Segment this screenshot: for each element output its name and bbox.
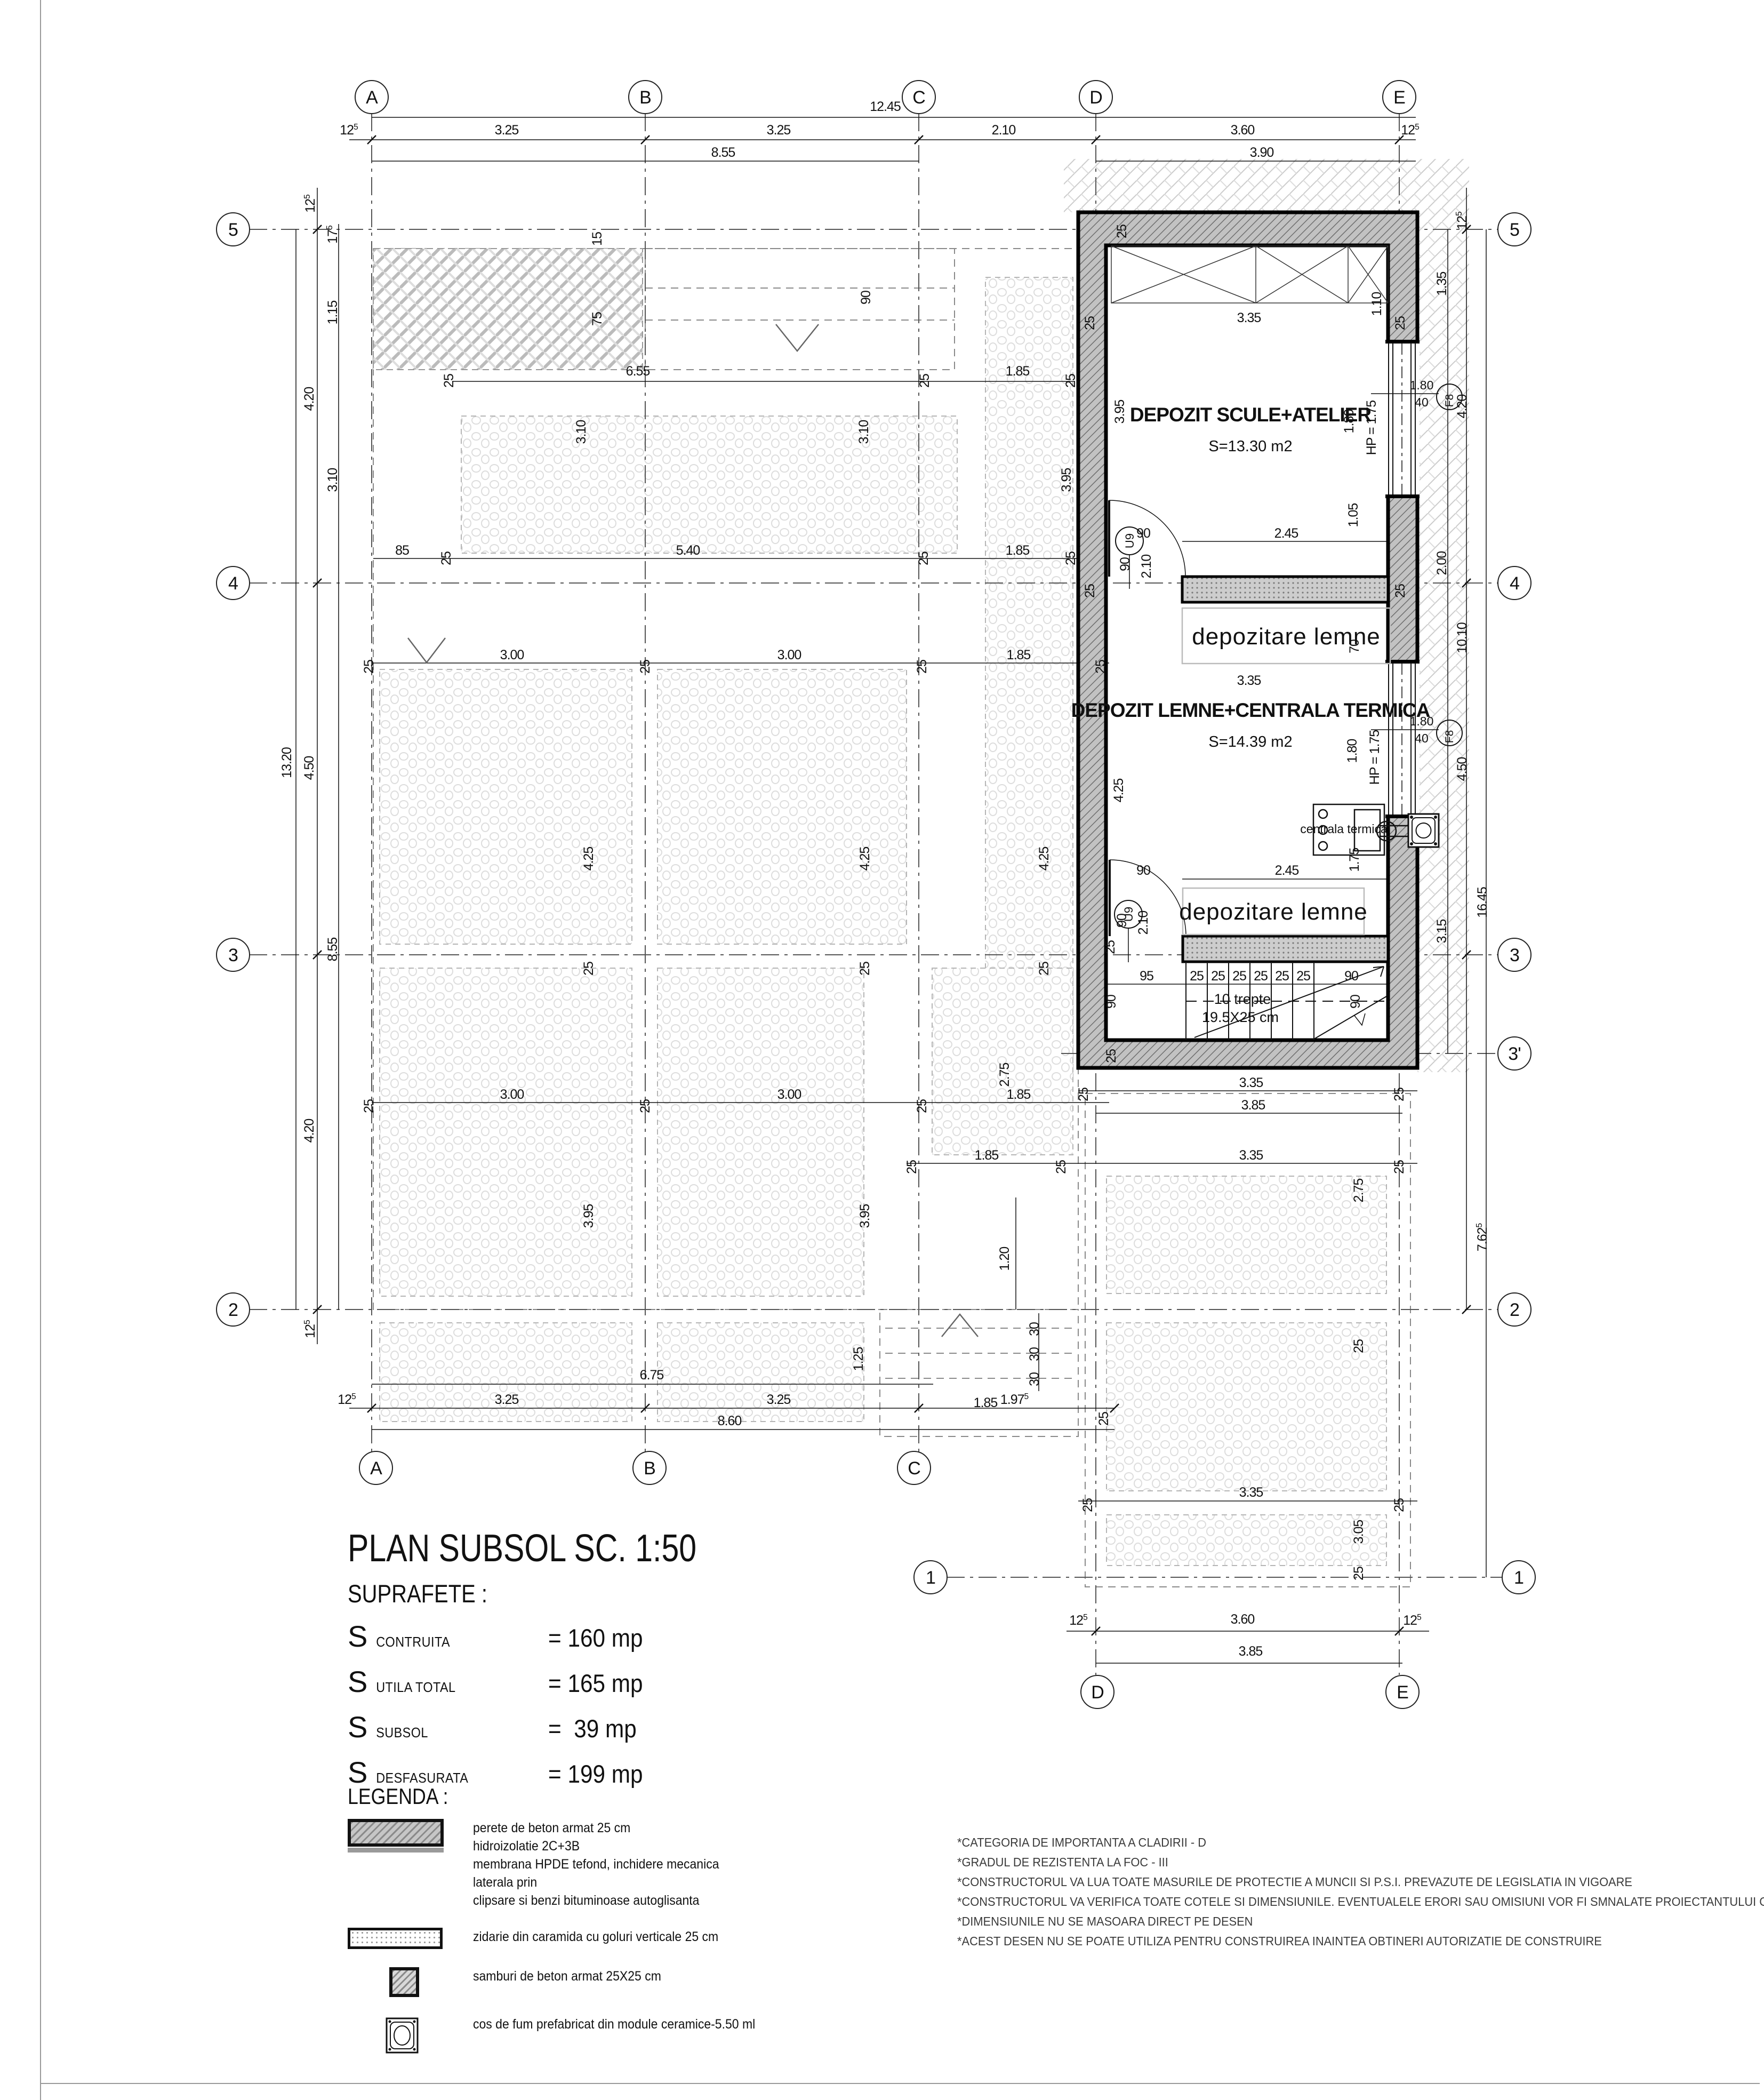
grid-bubble-C: C: [902, 81, 935, 114]
dim-label: 4.50: [302, 756, 317, 780]
dim-label: 4.20: [302, 1119, 317, 1143]
grid-bubble-5: 5: [1498, 213, 1531, 246]
dim-label: 2.45: [1275, 863, 1299, 878]
grid-bubble-2: 2: [217, 1293, 250, 1326]
dim-label: 25: [1254, 969, 1268, 984]
dim-label: 3.25: [767, 123, 791, 138]
dim-label: 8.60: [718, 1414, 742, 1428]
note-line: *GRADUL DE REZISTENTA LA FOC - III: [957, 1853, 1764, 1872]
dim-label: 8.55: [711, 145, 735, 160]
dim-label: 25: [1103, 940, 1118, 954]
dim-label: 1.85: [1007, 648, 1031, 662]
dim-label: 25: [1351, 1567, 1366, 1580]
surface-symbol: S: [348, 1664, 372, 1699]
dim-label: 125: [338, 1392, 356, 1407]
dim-label: 3.15: [1434, 920, 1449, 944]
dim-label: 4.50: [1455, 757, 1470, 781]
partition-row3: [1183, 936, 1388, 962]
dim-label: 25: [442, 374, 456, 388]
grid-bubble-A: A: [359, 1451, 392, 1484]
concrete-wall-swatch: [348, 1819, 444, 1847]
dim-label: 90: [1136, 863, 1150, 878]
grid-bubble-A: A: [355, 81, 388, 114]
dim-label: 90: [1348, 995, 1363, 1009]
partition-row4: [1182, 577, 1388, 602]
window-1: [1385, 340, 1420, 498]
gray-annotation: centrala termica: [1300, 822, 1388, 836]
note-line: *CONSTRUCTORUL VA VERIFICA TOATE COTELE …: [957, 1892, 1764, 1912]
dim-label: 3.25: [495, 123, 519, 138]
dim-label: 25: [638, 660, 653, 674]
room-name: DEPOZIT SCULE+ATELIER: [1130, 404, 1371, 426]
grid-bubble-B: B: [633, 1451, 666, 1484]
dim-label: 1.85: [1006, 543, 1030, 558]
dim-label: 25: [1393, 584, 1408, 598]
dim-label: 1.25: [851, 1347, 866, 1371]
svg-text:3: 3: [228, 945, 238, 965]
svg-text:4: 4: [228, 573, 238, 594]
dim-label: 25: [1083, 316, 1097, 330]
dim-label: 4.25: [857, 847, 872, 871]
svg-text:3': 3': [1508, 1044, 1520, 1064]
legend-item: zidarie din caramida cu goluri verticale…: [348, 1928, 780, 1949]
svg-text:C: C: [912, 87, 925, 108]
surface-row: SSUBSOL= 39 mp: [348, 1710, 828, 1744]
dim-label: 2.10: [992, 123, 1016, 138]
dim-label: 4.25: [581, 847, 596, 871]
dim-label: 25: [439, 552, 454, 565]
svg-text:A: A: [366, 87, 378, 108]
dim-label: 25: [1104, 1049, 1119, 1063]
dim-label: 5.40: [676, 543, 700, 558]
svg-text:C: C: [908, 1458, 920, 1479]
dim-label: 125: [1401, 123, 1419, 138]
svg-text:2: 2: [228, 1300, 238, 1320]
svg-text:F8: F8: [1444, 394, 1456, 408]
dim-label: 3.90: [1250, 145, 1274, 160]
dim-label: 15: [590, 232, 605, 246]
dim-label: 3.10: [325, 468, 340, 492]
svg-text:40: 40: [1415, 731, 1429, 745]
surface-row: SUTILA TOTAL= 165 mp: [348, 1664, 828, 1699]
room-area: S=13.30 m2: [1208, 438, 1292, 455]
dim-label: 1.05: [1346, 504, 1361, 528]
svg-text:U9: U9: [1122, 907, 1135, 922]
dim-label: 3.95: [581, 1204, 596, 1228]
dim-label: 2.10: [1136, 911, 1151, 935]
gray-annotation: 10 trepte: [1214, 991, 1271, 1007]
note-line: *CONSTRUCTORUL VA LUA TOATE MASURILE DE …: [957, 1872, 1764, 1892]
note-line: *CATEGORIA DE IMPORTANTA A CLADIRII - D: [957, 1833, 1764, 1853]
dim-label: 12.45: [870, 99, 901, 114]
dim-label: 90: [1118, 557, 1133, 571]
legend-heading: LEGENDA :: [348, 1784, 715, 1809]
dim-label: 25: [915, 660, 929, 674]
svg-text:F8: F8: [1444, 730, 1456, 744]
roof-hatch-area: [373, 249, 643, 370]
grid-bubble-C: C: [897, 1451, 931, 1484]
dim-label: 25: [1275, 969, 1289, 984]
dim-label: 125: [340, 123, 358, 138]
svg-text:A: A: [370, 1458, 382, 1479]
svg-text:E: E: [1393, 87, 1405, 108]
dim-label: 1.85: [974, 1395, 998, 1410]
hydro-insulation-strip: [348, 1848, 444, 1853]
svg-text:4: 4: [1510, 573, 1519, 594]
surface-row: SCONTRUITA= 160 mp: [348, 1619, 828, 1654]
dim-label: 95: [1140, 969, 1153, 984]
dim-label: 25: [1351, 1339, 1366, 1353]
svg-text:3: 3: [1510, 945, 1519, 965]
dim-label: 25: [1076, 1088, 1091, 1101]
dim-label: 3.25: [767, 1392, 791, 1407]
grid-bubble-3': 3': [1498, 1037, 1531, 1070]
dim-label: 25: [1063, 552, 1078, 565]
dim-label: 25: [1063, 374, 1078, 388]
dim-label: 16.45: [1475, 887, 1490, 918]
surface-value: = 165 mp: [548, 1668, 800, 1698]
dim-label: 3.00: [777, 1087, 801, 1102]
dim-label: 7.625: [1475, 1223, 1490, 1251]
gray-annotation: depozitare lemne: [1192, 624, 1381, 650]
svg-text:1: 1: [926, 1568, 935, 1588]
dim-label: 3.85: [1239, 1644, 1263, 1659]
dim-label: 125: [303, 1320, 318, 1338]
dim-label: 3.35: [1239, 1075, 1263, 1090]
dim-label: 3.00: [777, 648, 801, 662]
dim-label: HP = 1.75: [1367, 730, 1382, 785]
concrete-core-swatch: [389, 1967, 419, 1997]
dim-label: 3.35: [1239, 1148, 1263, 1163]
note-line: *DIMENSIUNILE NU SE MASOARA DIRECT PE DE…: [957, 1912, 1764, 1931]
dim-label: 1.20: [997, 1247, 1012, 1271]
dim-label: 3.25: [495, 1392, 519, 1407]
dim-label: 4.25: [1037, 847, 1052, 871]
dim-label: 1.75: [1347, 848, 1362, 872]
dim-label: 175: [325, 226, 340, 244]
dim-label: 8.55: [325, 938, 340, 962]
dim-label: 25: [1083, 584, 1097, 598]
dim-label: 30: [1027, 1372, 1042, 1386]
svg-text:U9: U9: [1123, 533, 1136, 548]
dim-label: 85: [395, 543, 409, 558]
suprafete-heading: SUPRAFETE :: [348, 1579, 756, 1608]
svg-text:40: 40: [1415, 395, 1429, 409]
dim-label: 25: [1054, 1160, 1069, 1174]
dim-label: 3.05: [1351, 1520, 1366, 1544]
legend: LEGENDA : perete de beton armat 25 cmhid…: [348, 1784, 780, 2077]
svg-text:1: 1: [1514, 1568, 1524, 1588]
surface-label: CONTRUITA: [372, 1634, 531, 1650]
surface-symbol: S: [348, 1710, 372, 1744]
dim-label: 25: [1232, 969, 1246, 984]
legend-item: samburi de beton armat 25X25 cm: [348, 1967, 780, 1997]
surface-value: = 39 mp: [548, 1714, 800, 1743]
dim-label: 3.10: [574, 420, 589, 444]
surface-label: SUBSOL: [372, 1724, 531, 1741]
shelving-x-bracing: [1111, 246, 1388, 303]
dim-label: 25: [1392, 1088, 1407, 1101]
room-area: S=14.39 m2: [1208, 733, 1292, 750]
gray-annotation: depozitare lemne: [1179, 899, 1368, 925]
brick-wall-swatch: [348, 1928, 443, 1949]
dim-label: 25: [904, 1160, 919, 1174]
dim-label: 25: [1211, 969, 1225, 984]
grid-bubble-E: E: [1383, 81, 1416, 114]
grid-bubble-4: 4: [217, 566, 250, 600]
svg-text:1.80: 1.80: [1410, 714, 1434, 728]
svg-text:D: D: [1089, 87, 1102, 108]
dim-label: 25: [917, 374, 932, 388]
dim-label: 3.60: [1231, 123, 1255, 138]
legend-item-text: perete de beton armat 25 cmhidroizolatie…: [473, 1819, 719, 1910]
dim-label: 30: [1027, 1322, 1042, 1336]
grid-bubble-D: D: [1079, 81, 1112, 114]
dim-label: 25: [1392, 1498, 1407, 1512]
floor-plan-drawing: 12.451253.253.252.103.601258.553.9013.20…: [0, 0, 1764, 2100]
surface-rows: SCONTRUITA= 160 mpSUTILA TOTAL= 165 mpSS…: [348, 1619, 828, 1790]
dim-label: 13.20: [279, 747, 294, 778]
dim-label: 4.20: [302, 387, 317, 411]
dim-label: 3.35: [1237, 310, 1261, 325]
dim-label: 1.15: [325, 301, 340, 325]
dim-label: 2.75: [997, 1063, 1012, 1087]
legend-item: cos de fum prefabricat din module cerami…: [348, 2015, 780, 2058]
dim-label: 2.75: [1351, 1179, 1366, 1203]
svg-text:D: D: [1091, 1682, 1104, 1703]
svg-text:5: 5: [1510, 220, 1519, 240]
notes-block: *CATEGORIA DE IMPORTANTA A CLADIRII - D*…: [957, 1833, 1764, 1951]
legend-item-text: samburi de beton armat 25X25 cm: [473, 1967, 661, 1985]
dim-label: 25: [1392, 1160, 1407, 1174]
dim-label: 1.80: [1345, 739, 1360, 763]
dim-label: 10.10: [1455, 622, 1470, 653]
dim-label: 3.95: [857, 1204, 872, 1228]
dim-label: 25: [362, 1099, 376, 1113]
legend-item-text: cos de fum prefabricat din module cerami…: [473, 2015, 755, 2033]
dim-label: 25: [1080, 1498, 1095, 1512]
dim-label: 1.85: [1006, 364, 1030, 379]
dim-label: 6.55: [626, 364, 650, 379]
grid-bubble-E: E: [1386, 1675, 1419, 1708]
dim-label: 1.85: [1007, 1087, 1031, 1102]
dim-label: 3.60: [1231, 1612, 1255, 1627]
dim-label: 90: [1104, 995, 1119, 1009]
wood-storage-outlines: [1182, 608, 1390, 935]
dim-label: 2.00: [1434, 552, 1449, 576]
dim-label: 125: [303, 195, 318, 213]
surface-label: UTILA TOTAL: [372, 1679, 531, 1696]
dim-label: 25: [581, 962, 596, 976]
dim-label: 30: [1027, 1347, 1042, 1361]
chimney-symbol: [385, 2015, 419, 2056]
dim-label: 2.45: [1274, 526, 1298, 541]
svg-text:1.80: 1.80: [1410, 378, 1434, 392]
dim-label: 4.25: [1111, 779, 1126, 803]
legend-item: perete de beton armat 25 cmhidroizolatie…: [348, 1819, 780, 1910]
svg-text:B: B: [644, 1458, 655, 1479]
dim-label: 3.00: [500, 648, 524, 662]
dim-label: 25: [1093, 660, 1108, 674]
grid-bubble-3: 3: [1498, 938, 1531, 971]
dim-label: 3.95: [1112, 400, 1127, 424]
dim-label: 75: [590, 312, 605, 326]
legend-item-text: zidarie din caramida cu goluri verticale…: [473, 1928, 718, 1946]
grid-bubble-1: 1: [1502, 1561, 1535, 1594]
chimney: [1408, 814, 1439, 847]
grid-bubble-3: 3: [217, 938, 250, 971]
dim-label: 25: [1114, 225, 1129, 238]
dim-label: 90: [1344, 969, 1358, 984]
grid-bubble-1: 1: [914, 1561, 947, 1594]
dim-label: 1.975: [1000, 1392, 1029, 1407]
grid-bubble-5: 5: [217, 213, 250, 246]
dim-label: 25: [916, 552, 931, 565]
dim-label: 3.85: [1241, 1098, 1265, 1113]
dim-label: 3.35: [1237, 673, 1261, 688]
dim-label: 25: [1096, 1412, 1111, 1426]
dim-label: 25: [1296, 969, 1310, 984]
dim-label: 1.35: [1434, 272, 1449, 296]
gray-annotation: 19.5X25 cm: [1202, 1009, 1279, 1025]
svg-text:2: 2: [1510, 1300, 1519, 1320]
dim-label: 125: [1069, 1613, 1087, 1628]
dim-label: 6.75: [640, 1368, 664, 1383]
surface-symbol: S: [348, 1619, 372, 1654]
note-line: *ACEST DESEN NU SE POATE UTILIZA PENTRU …: [957, 1931, 1764, 1951]
dim-label: 25: [362, 660, 376, 674]
title-block: PLAN SUBSOL SC. 1:50 SUPRAFETE : SCONTRU…: [348, 1527, 828, 1790]
dim-label: 1.10: [1369, 292, 1384, 316]
dim-label: 25: [915, 1099, 929, 1113]
dim-label: 25: [1190, 969, 1204, 984]
dim-label: 125: [1403, 1613, 1421, 1628]
dim-label: 25: [1037, 962, 1052, 976]
dim-label: 25: [638, 1099, 653, 1113]
svg-text:5: 5: [228, 220, 238, 240]
dim-label: 90: [859, 291, 873, 305]
dim-label: 3.95: [1059, 468, 1074, 492]
dim-label: 25: [1393, 316, 1408, 330]
svg-text:E: E: [1397, 1682, 1408, 1703]
svg-text:B: B: [639, 87, 651, 108]
dim-label: 3.00: [500, 1087, 524, 1102]
dim-label: 25: [857, 962, 872, 976]
surface-value: = 160 mp: [548, 1623, 800, 1652]
dim-label: 3.10: [856, 420, 871, 444]
plan-title: PLAN SUBSOL SC. 1:50: [348, 1527, 741, 1570]
dim-label: 3.35: [1239, 1485, 1263, 1500]
grid-bubble-B: B: [629, 81, 662, 114]
room-name: DEPOZIT LEMNE+CENTRALA TERMICA: [1071, 699, 1430, 721]
grid-bubble-4: 4: [1498, 566, 1531, 600]
grid-bubble-D: D: [1081, 1675, 1114, 1708]
dim-label: 1.85: [975, 1148, 999, 1163]
dim-label: 2.10: [1139, 555, 1154, 579]
grid-bubble-2: 2: [1498, 1293, 1531, 1326]
drawing-sheet: 12.451253.253.252.103.601258.553.9013.20…: [0, 0, 1764, 2100]
